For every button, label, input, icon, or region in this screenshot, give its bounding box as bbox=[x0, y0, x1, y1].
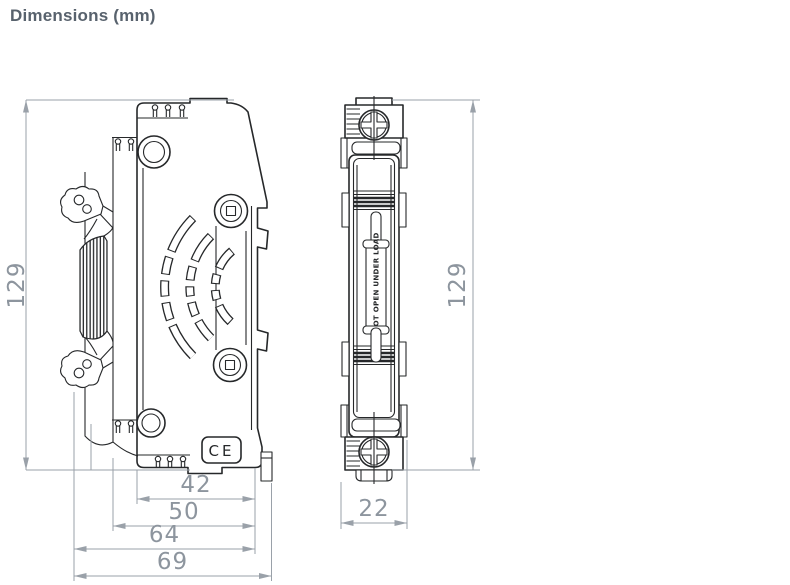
din-rail-clip bbox=[61, 187, 113, 388]
front-view: DO NOT OPEN UNDER LOAD bbox=[341, 96, 407, 484]
extension-lines bbox=[26, 100, 480, 581]
dimension-label-22: 22 bbox=[358, 496, 389, 522]
dimension-height-side: 129 bbox=[4, 100, 30, 470]
dimension-width-69: 69 bbox=[74, 549, 272, 576]
dimension-width-50: 50 bbox=[113, 499, 255, 526]
vent-slots bbox=[165, 218, 232, 356]
dimension-height-front: 129 bbox=[445, 100, 473, 470]
technical-drawing: CE bbox=[0, 0, 790, 585]
ce-mark-label: CE bbox=[209, 442, 235, 460]
dimension-label-42: 42 bbox=[180, 472, 211, 498]
ce-mark: CE bbox=[202, 437, 241, 463]
dimension-width-42: 42 bbox=[137, 472, 255, 499]
dimension-label-129-front: 129 bbox=[445, 262, 471, 309]
clip-spring bbox=[80, 236, 107, 339]
dimension-width-22: 22 bbox=[341, 496, 407, 523]
mounting-boss-square-bottom bbox=[214, 349, 247, 382]
side-view: CE bbox=[61, 99, 272, 482]
mounting-boss-round-top bbox=[138, 136, 170, 168]
dimension-label-129-side: 129 bbox=[4, 262, 30, 309]
dimension-label-69: 69 bbox=[157, 549, 188, 575]
mounting-boss-square-top bbox=[215, 195, 248, 228]
mounting-boss-round-bottom bbox=[137, 409, 165, 437]
dimension-label-64: 64 bbox=[149, 522, 180, 548]
